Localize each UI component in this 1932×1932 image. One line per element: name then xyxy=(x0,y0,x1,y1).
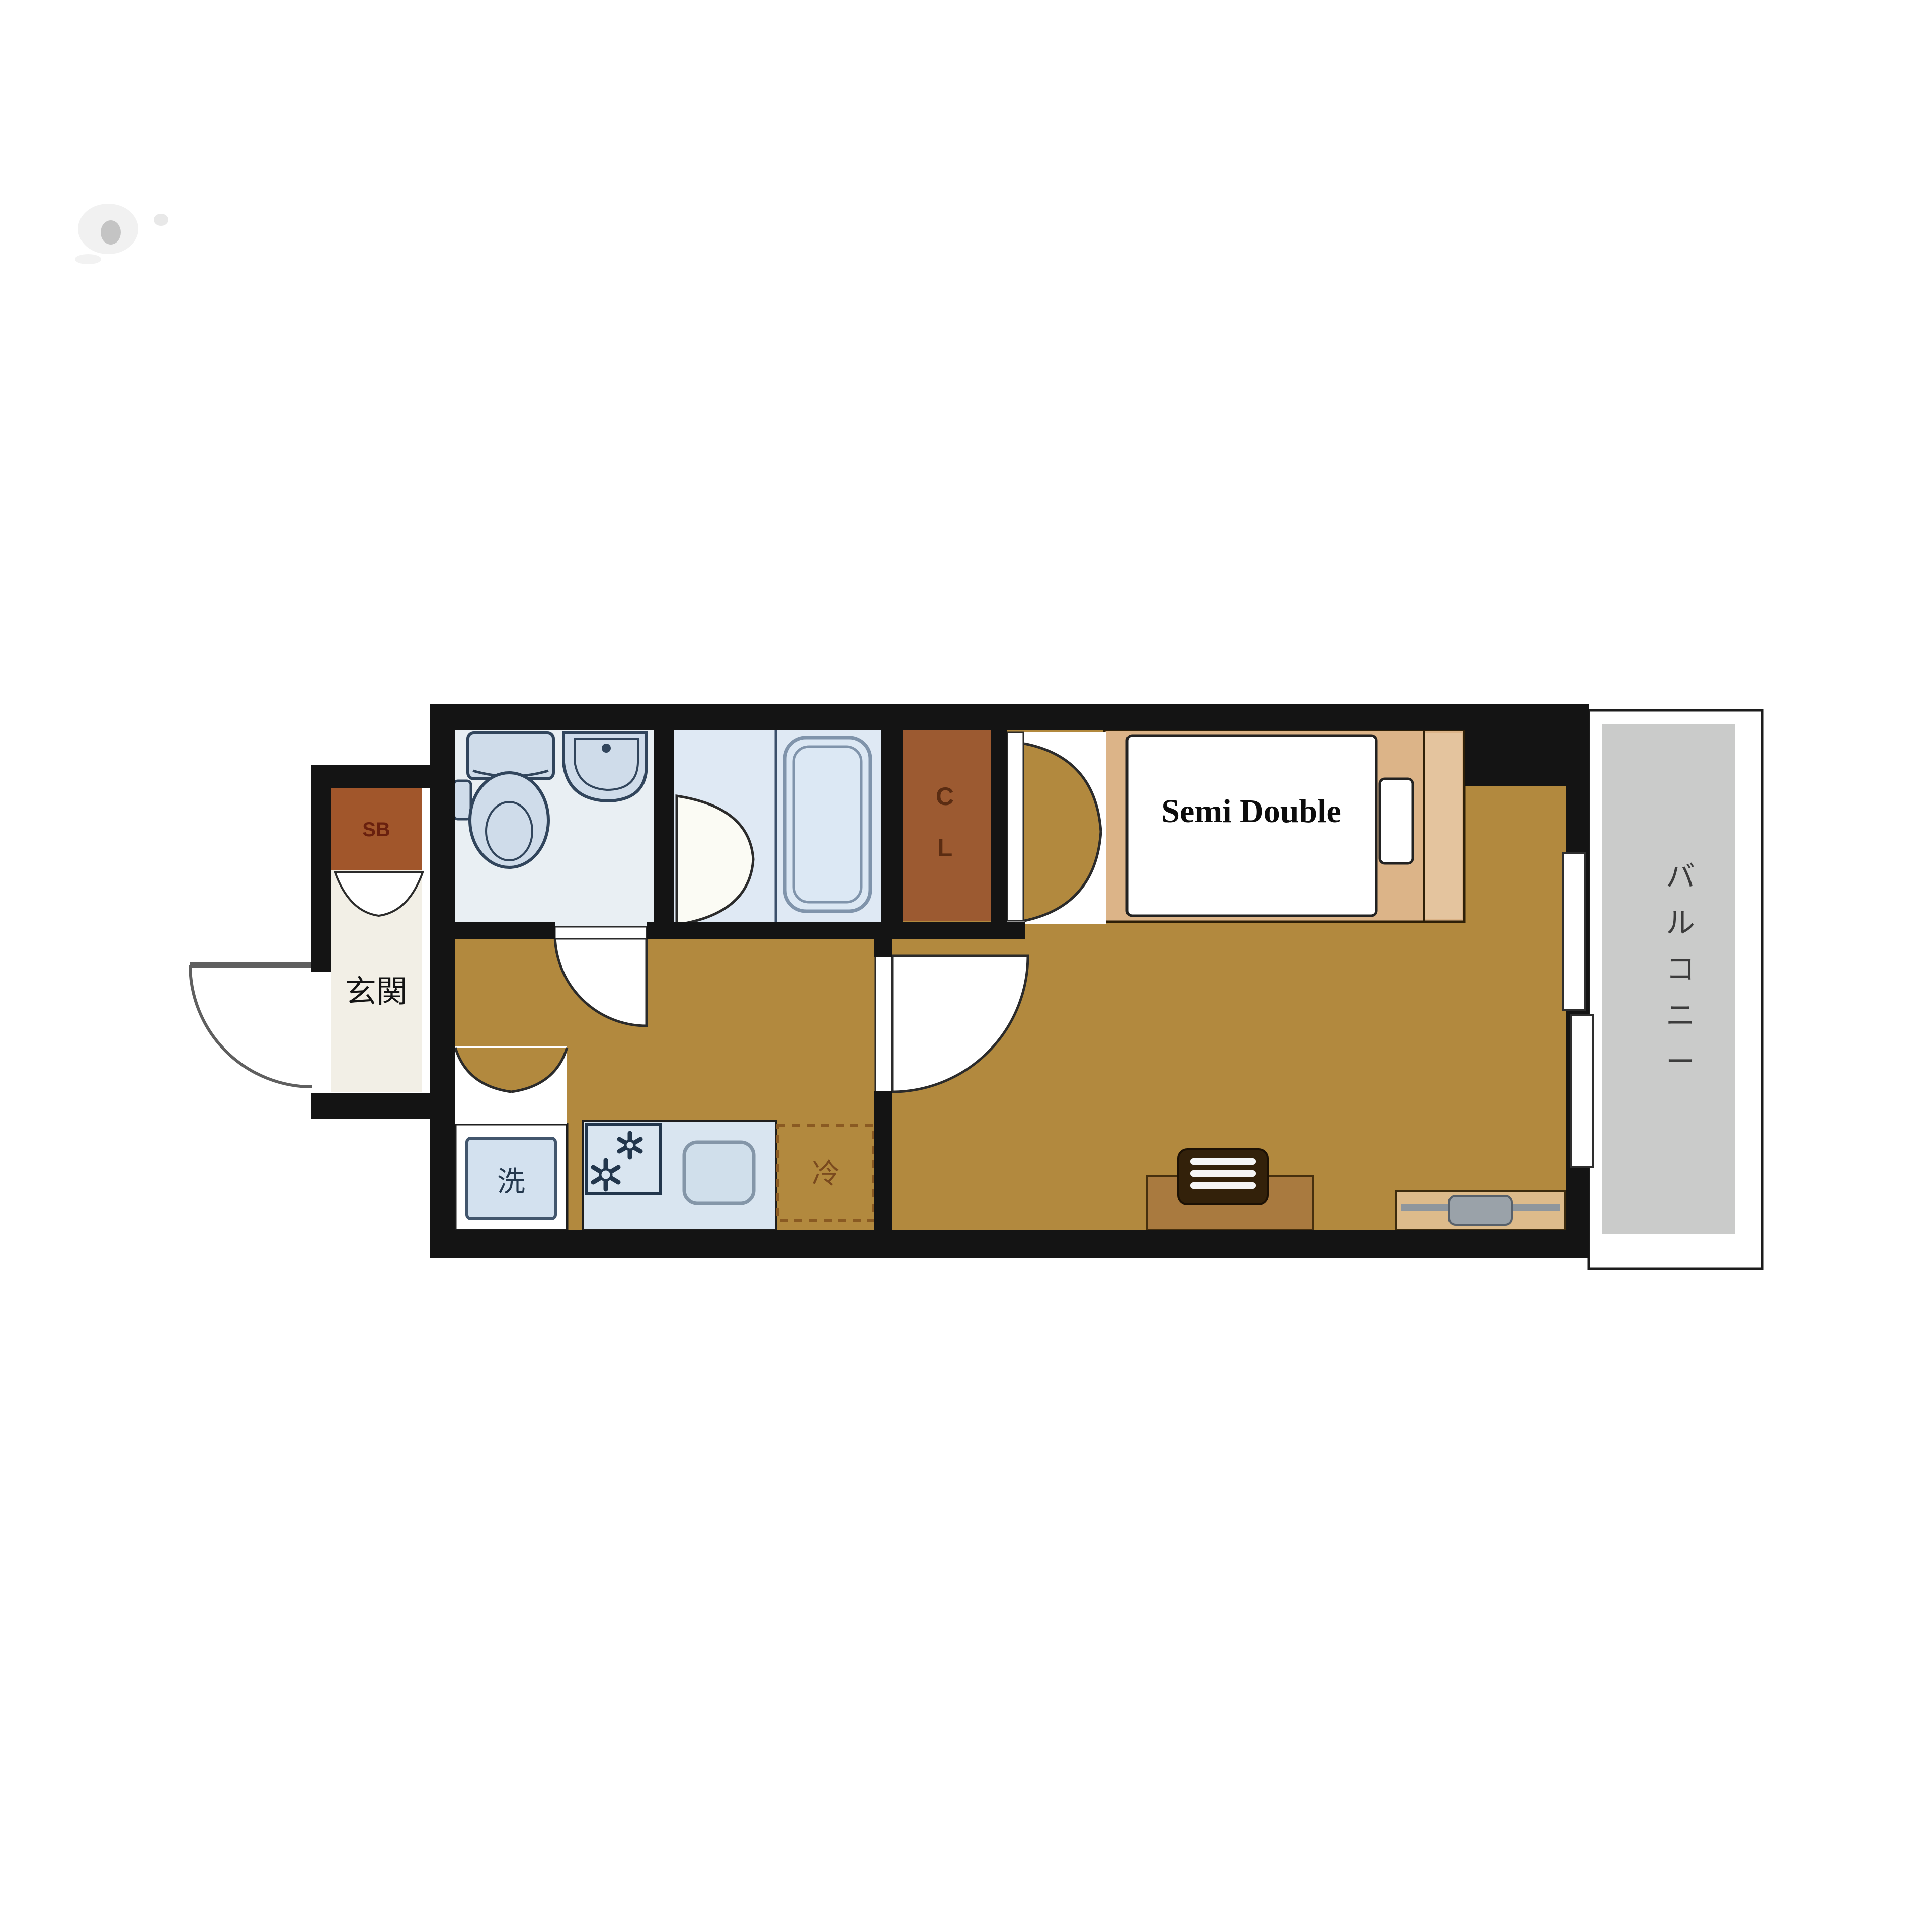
wall-main-divider-upper xyxy=(874,939,892,957)
sink-icon xyxy=(563,733,647,801)
sink-faucet-dot xyxy=(602,744,611,753)
kitchen-sink xyxy=(684,1142,754,1203)
washer-doors-icon xyxy=(455,1046,567,1124)
wall-corridor-top-right xyxy=(647,922,1025,939)
chair-slat xyxy=(1190,1182,1256,1189)
chair xyxy=(1178,1149,1268,1204)
window-sliding-pane xyxy=(1563,853,1585,1010)
door-leaf-main xyxy=(875,956,892,1092)
refrigerator-label: 冷 xyxy=(812,1158,840,1189)
wall-bath-closet xyxy=(881,730,903,922)
balcony: バルコニー xyxy=(1589,710,1762,1269)
washing-machine: 洗 xyxy=(455,1124,567,1230)
shoe-box-label: SB xyxy=(362,819,390,841)
bed-label: Semi Double xyxy=(1161,793,1341,830)
wall-main-divider-lower xyxy=(874,1091,892,1230)
wall-entrance-left xyxy=(311,765,331,972)
door-leaf-toilet xyxy=(555,927,647,939)
entrance-label: 玄関 xyxy=(345,975,408,1009)
window-sliding-pane xyxy=(1571,1015,1593,1167)
wall-bottom xyxy=(430,1230,1589,1258)
toilet-flush-handle xyxy=(454,781,471,819)
chair-slat xyxy=(1190,1170,1256,1177)
bathtub-rim xyxy=(785,738,870,911)
tv-icon xyxy=(1449,1196,1512,1225)
wall-top xyxy=(430,704,1589,730)
wall-toilet-bath xyxy=(654,730,674,922)
wall-corridor-top-left xyxy=(455,922,555,939)
chair-slat xyxy=(1190,1158,1256,1165)
balcony-label: バルコニー xyxy=(1666,860,1695,1078)
bed-headboard xyxy=(1425,733,1462,919)
wall-entrance-top xyxy=(311,765,455,788)
wall-entrance-bottom xyxy=(311,1093,455,1119)
wall-closet-right xyxy=(991,704,1007,922)
toilet-bowl xyxy=(470,773,548,867)
bed: Semi Double xyxy=(1104,730,1464,922)
tv-board xyxy=(1396,1191,1565,1230)
bathtub-icon xyxy=(785,738,870,911)
floor-plan: バルコニー 洗 xyxy=(0,0,1932,1932)
kitchen-counter xyxy=(583,1121,776,1230)
closet xyxy=(903,730,991,921)
bed-pillow xyxy=(1380,779,1413,863)
closet-door-leaf xyxy=(1007,732,1023,921)
washing-machine-label: 洗 xyxy=(497,1166,525,1197)
closet-doors-icon xyxy=(1007,732,1106,924)
